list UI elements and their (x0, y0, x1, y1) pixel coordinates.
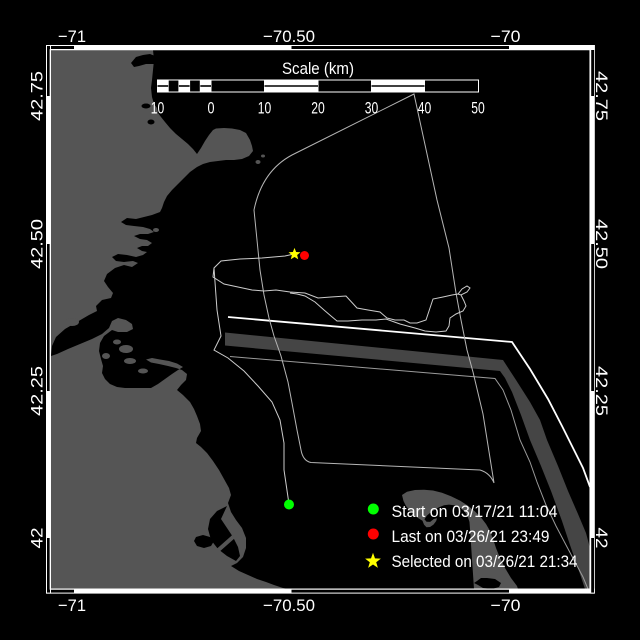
svg-text:42.25: 42.25 (28, 366, 47, 416)
svg-text:42.75: 42.75 (592, 71, 611, 121)
svg-text:42: 42 (28, 528, 47, 549)
svg-text:42: 42 (592, 528, 611, 549)
svg-text:30: 30 (365, 99, 379, 118)
svg-text:42.75: 42.75 (28, 71, 47, 121)
svg-text:−70.50: −70.50 (263, 596, 315, 615)
svg-text:10: 10 (151, 99, 165, 118)
svg-text:42.25: 42.25 (592, 366, 611, 416)
svg-text:Selected on 03/26/21 21:34: Selected on 03/26/21 21:34 (392, 552, 578, 571)
svg-text:50: 50 (471, 99, 485, 118)
svg-text:0: 0 (208, 99, 215, 118)
svg-text:−70: −70 (491, 27, 521, 46)
svg-text:42.50: 42.50 (592, 219, 611, 269)
svg-text:−71: −71 (58, 27, 86, 46)
svg-text:Scale (km): Scale (km) (282, 59, 354, 78)
svg-text:Last on 03/26/21 23:49: Last on 03/26/21 23:49 (392, 527, 550, 546)
svg-text:42.50: 42.50 (28, 219, 47, 269)
svg-text:10: 10 (258, 99, 272, 118)
svg-text:40: 40 (418, 99, 432, 118)
svg-text:−70.50: −70.50 (263, 27, 315, 46)
svg-text:−70: −70 (491, 596, 521, 615)
svg-text:20: 20 (311, 99, 325, 118)
svg-text:−71: −71 (58, 596, 86, 615)
svg-text:Start on 03/17/21 11:04: Start on 03/17/21 11:04 (392, 502, 558, 521)
